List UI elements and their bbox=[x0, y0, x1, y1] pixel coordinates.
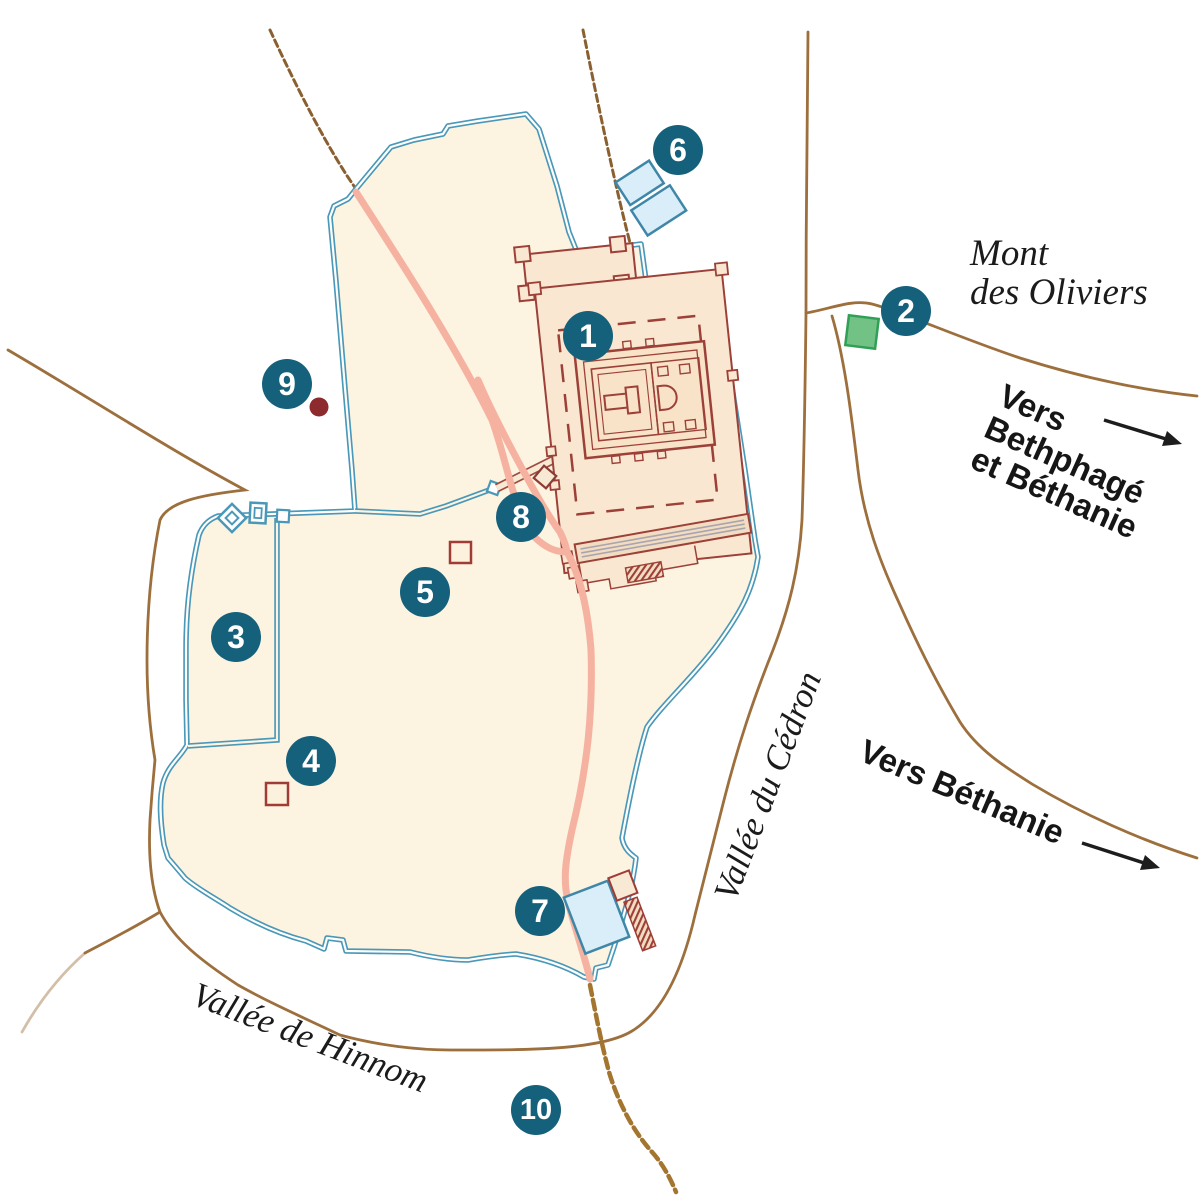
map-marker-4: 4 bbox=[286, 736, 336, 786]
map-canvas bbox=[0, 0, 1200, 1200]
road-sw-fork bbox=[85, 912, 160, 953]
jerusalem-map: Mont des Oliviers Vers Bethphagé et Béth… bbox=[0, 0, 1200, 1200]
map-marker-8: 8 bbox=[496, 492, 546, 542]
map-marker-10: 10 bbox=[511, 1085, 561, 1135]
temple-porch bbox=[625, 386, 640, 413]
label-line: des Oliviers bbox=[970, 273, 1148, 312]
arrow-bethanie-icon bbox=[1082, 843, 1160, 870]
road-south-exit bbox=[590, 985, 676, 1192]
red-square-icon-4 bbox=[266, 783, 288, 805]
tower-rect-icon bbox=[249, 503, 266, 524]
map-marker-3: 3 bbox=[211, 612, 261, 662]
green-square-icon bbox=[845, 315, 878, 348]
road-sw-fork-faded bbox=[22, 953, 85, 1032]
label-mont-des-oliviers: Mont des Oliviers bbox=[970, 234, 1148, 312]
map-marker-6: 6 bbox=[653, 125, 703, 175]
map-marker-5: 5 bbox=[400, 567, 450, 617]
red-dot-icon bbox=[310, 398, 329, 417]
tower-square-icon bbox=[277, 510, 290, 523]
map-marker-9: 9 bbox=[262, 359, 312, 409]
label-line: Mont bbox=[970, 234, 1148, 273]
red-square-icon-5 bbox=[450, 542, 471, 563]
road-north-gate bbox=[270, 30, 356, 189]
map-marker-1: 1 bbox=[563, 311, 613, 361]
map-marker-7: 7 bbox=[515, 886, 565, 936]
map-marker-2: 2 bbox=[881, 286, 931, 336]
